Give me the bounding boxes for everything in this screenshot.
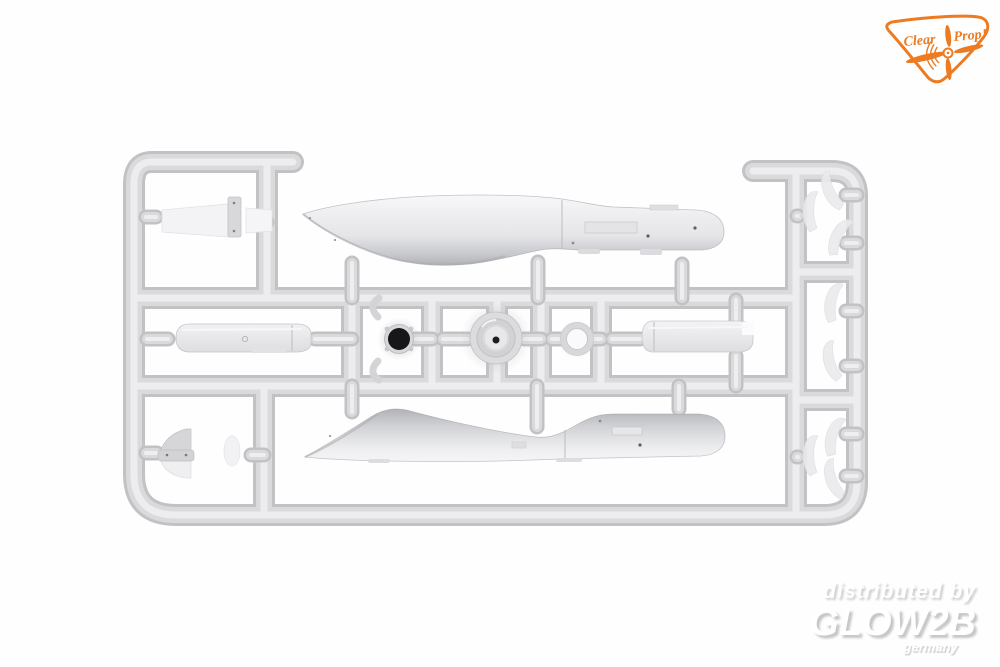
watermark-distributed-by: distributed by bbox=[809, 581, 976, 602]
float-part-right bbox=[642, 321, 754, 352]
wheel-part bbox=[561, 323, 594, 356]
distributor-watermark: distributed by GLOW2B germany bbox=[809, 581, 976, 653]
cowling-ring-part bbox=[385, 325, 414, 354]
float-part-left bbox=[176, 324, 311, 353]
fuselage-upper-part bbox=[298, 192, 730, 272]
logo-text-left: Clear bbox=[903, 32, 937, 50]
logo-text-right: Prop! bbox=[953, 27, 988, 45]
sprue-image: Clear Prop! bbox=[0, 0, 1000, 667]
tail-cone-part bbox=[158, 429, 240, 478]
engine-cowling-part bbox=[470, 312, 522, 364]
clear-prop-logo: Clear Prop! bbox=[887, 16, 988, 84]
watermark-glow2b: GLOW2B bbox=[809, 604, 976, 642]
product-photo: Clear Prop! distributed by GLOW2B german… bbox=[0, 0, 1000, 667]
stabilizer-part bbox=[162, 197, 272, 237]
fuselage-lower-part bbox=[300, 404, 732, 468]
